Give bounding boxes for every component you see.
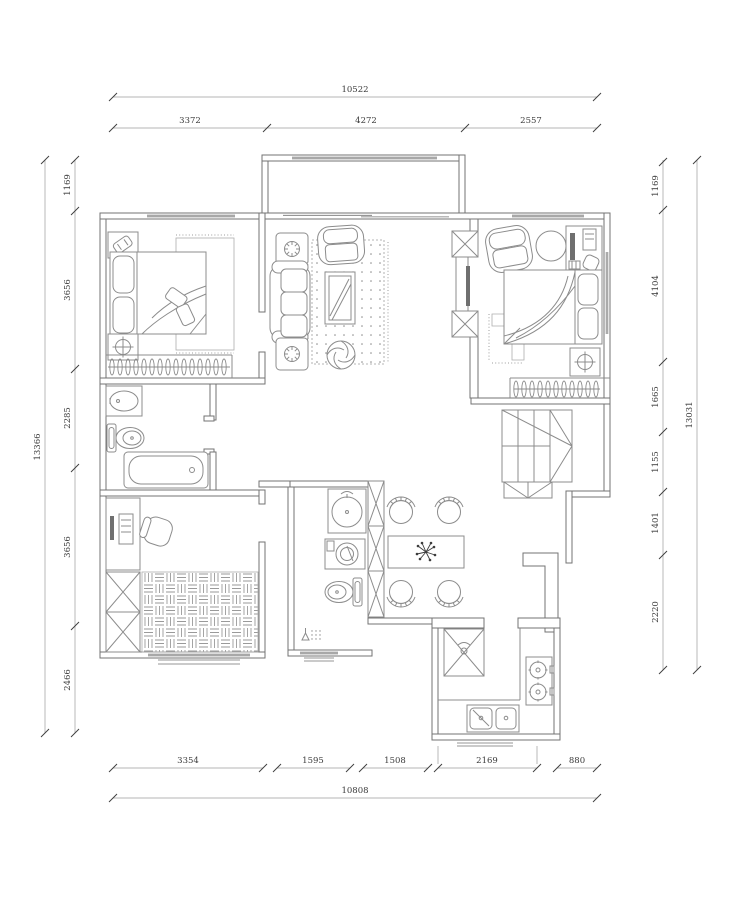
armchair-icon: [484, 224, 535, 275]
coffee-table-icon: [325, 272, 355, 324]
dim-left-overall: 13366: [33, 156, 49, 737]
pillow-icon: [578, 308, 598, 339]
dim-left-segments: 1169 3656 2285 3656 2466: [63, 156, 79, 737]
office-chair-icon: [138, 513, 175, 548]
bathroom-main: [106, 386, 208, 488]
toilet-icon: [325, 578, 362, 606]
dim-right-overall: 13031: [685, 156, 701, 674]
dining-chair-icon: [387, 497, 415, 524]
nightstand-lamp-icon: [108, 334, 138, 360]
dim-label: 10522: [341, 85, 368, 95]
dim-label: 13031: [685, 401, 695, 428]
dining-chair-icon: [387, 581, 415, 608]
study: [106, 498, 258, 652]
pillow-icon: [578, 274, 598, 305]
bathtub-icon: [124, 452, 208, 488]
washbasin-icon: [106, 386, 142, 416]
dim-label: 2220: [651, 601, 661, 623]
dim-label: 2557: [520, 116, 542, 126]
bed-icon: [504, 270, 602, 344]
dim-top-segments: 3372 4272 2557: [109, 116, 601, 132]
dim-bottom-segments: 3354 1595 1508 2169 880: [109, 746, 601, 772]
bedroom-top-right: [484, 224, 610, 398]
dim-label: 4272: [355, 116, 377, 126]
gas-stove-icon: [526, 657, 554, 705]
bed-icon: [110, 252, 206, 334]
tv-cabinet-icon: [452, 231, 478, 337]
kitchen: [438, 628, 554, 732]
dim-label: 1169: [63, 174, 73, 196]
floor-drain-icon: [302, 628, 321, 640]
computer-desk-icon: [106, 498, 140, 570]
storage-cabinets-icon: [106, 572, 140, 652]
side-table-lamp-icon: [276, 338, 308, 370]
bathroom-small: [302, 489, 366, 640]
tv-icon: [466, 266, 470, 306]
dim-label: 3372: [179, 116, 201, 126]
pillow-icon: [113, 256, 134, 293]
dim-top-overall: 10522: [109, 85, 601, 101]
dim-label: 1595: [302, 756, 324, 766]
dim-label: 1508: [384, 756, 406, 766]
dim-label: 1401: [651, 512, 661, 534]
side-table-lamp-icon: [276, 233, 308, 265]
floor-plan-drawing: 10522 3372 4272 2557 13366 1169 3656 228…: [0, 0, 740, 910]
parquet-rug-icon: [142, 572, 258, 652]
dim-label: 1169: [651, 175, 661, 197]
dim-label: 4104: [651, 275, 661, 297]
dim-label: 3656: [63, 536, 73, 558]
dining-chair-icon: [435, 497, 463, 524]
dining-chair-icon: [435, 581, 463, 608]
dim-label: 880: [569, 756, 585, 766]
dim-bottom-overall: 10808: [109, 786, 601, 802]
floor-fan-icon: [327, 341, 355, 369]
stair-landing: [504, 482, 552, 498]
wardrobe-hanger-rail-icon: [510, 378, 610, 398]
dim-label: 3656: [63, 279, 73, 301]
washbasin-icon: [328, 489, 366, 533]
dim-label: 3354: [177, 756, 199, 766]
washing-machine-icon: [325, 539, 365, 569]
pillow-icon: [113, 297, 134, 333]
double-sink-icon: [467, 705, 519, 732]
dim-right-segments: 1169 4104 1665 1155 1401 2220: [651, 158, 667, 674]
dim-label: 2285: [63, 407, 73, 429]
refrigerator-icon: [444, 629, 484, 676]
dim-label: 10808: [341, 786, 368, 796]
nightstand-lamp-icon: [570, 348, 600, 376]
dim-label: 13366: [33, 433, 43, 460]
armchair-icon: [317, 224, 366, 265]
dim-label: 2169: [476, 756, 498, 766]
stairs: [502, 410, 572, 498]
round-stool-icon: [536, 231, 566, 261]
dim-label: 2466: [63, 669, 73, 691]
sofa-icon: [270, 261, 310, 343]
partition-columns-icon: [368, 481, 384, 617]
bedroom-top-left: [106, 232, 234, 378]
dim-label: 1665: [651, 386, 661, 408]
dining-area: [368, 481, 464, 617]
dim-label: 1155: [651, 451, 661, 473]
computer-desk-icon: [566, 226, 602, 274]
toilet-icon: [107, 424, 144, 452]
living-room: [270, 224, 478, 370]
balcony-sliding-door: [283, 214, 449, 218]
floor-plan-canvas: 10522 3372 4272 2557 13366 1169 3656 228…: [0, 0, 740, 910]
